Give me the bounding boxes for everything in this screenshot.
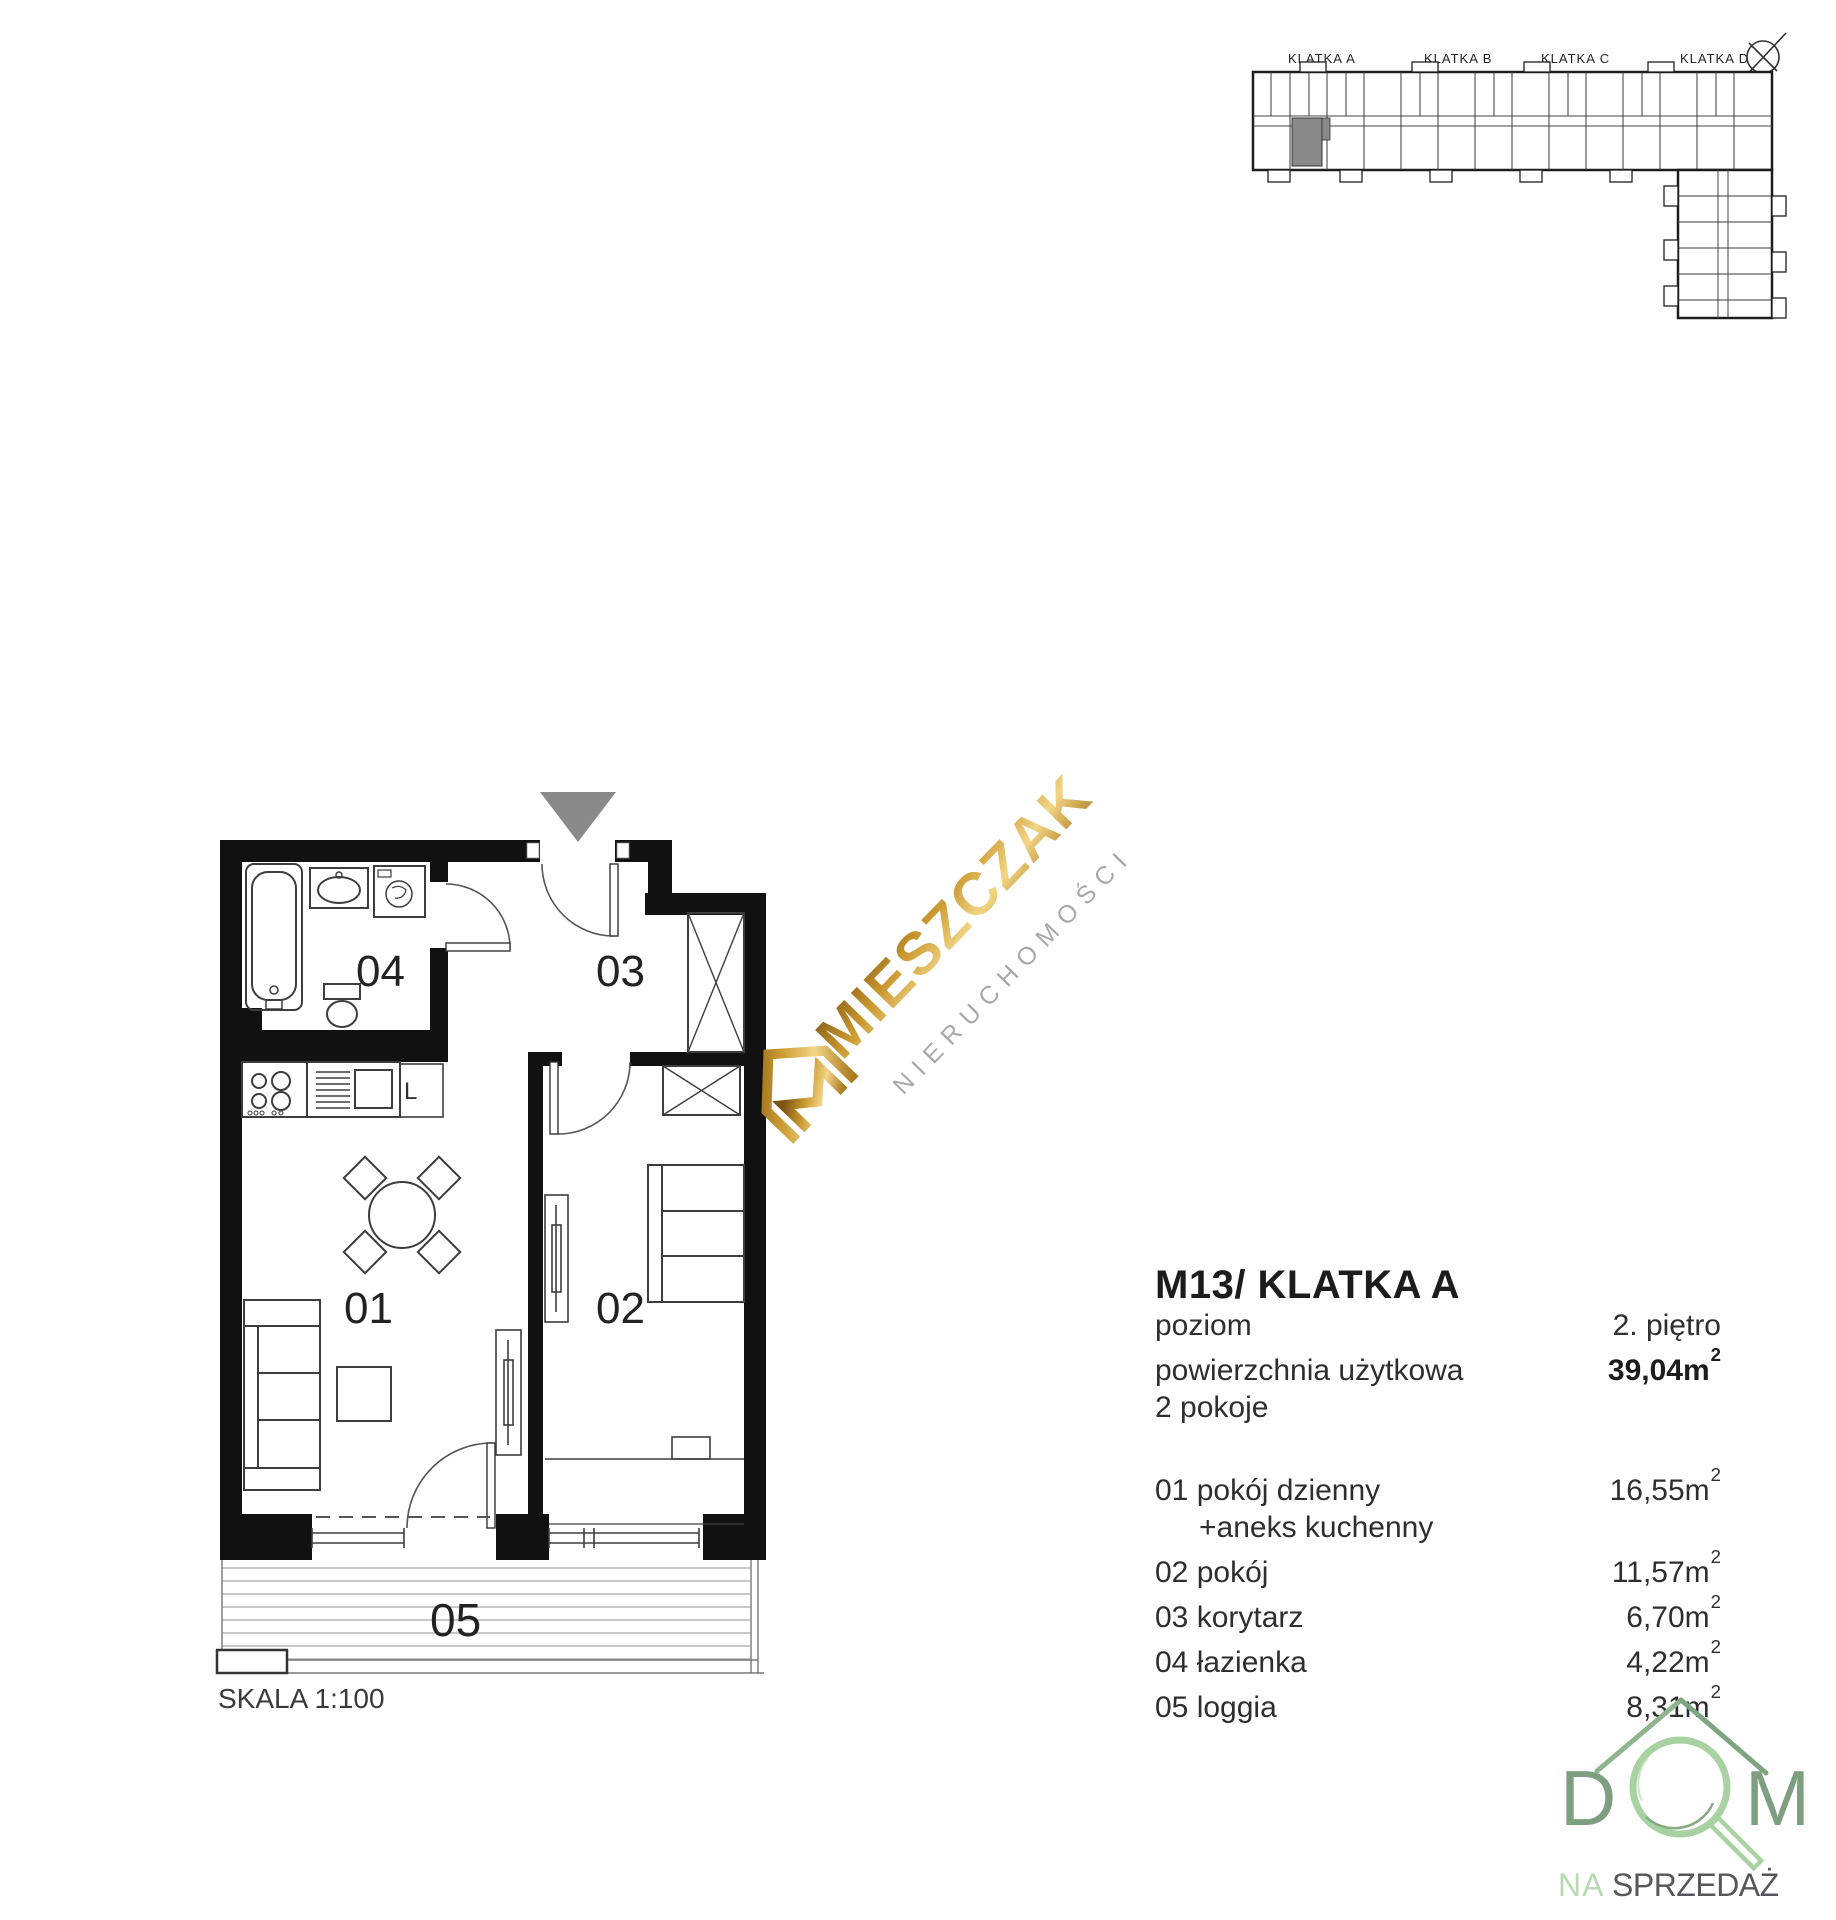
room-04-area: 4,22m2 xyxy=(1626,1636,1721,1681)
room-02-label: 02 pokój xyxy=(1155,1554,1268,1591)
fridge-label: L xyxy=(404,1078,417,1105)
area-value-number: 39,04m xyxy=(1608,1354,1710,1387)
room-04-area-number: 4,22m xyxy=(1626,1646,1709,1679)
level-label: poziom xyxy=(1155,1307,1252,1344)
bed-room2-icon xyxy=(545,1437,744,1459)
room-04-area-sup: 2 xyxy=(1711,1636,1721,1657)
highlighted-unit-annex xyxy=(1322,118,1330,140)
magnifier-icon xyxy=(1633,1740,1759,1866)
tagline-na: NA xyxy=(1558,1867,1604,1903)
roof-icon xyxy=(1597,1700,1766,1773)
loggia xyxy=(217,1560,764,1673)
room-04-label: 04 łazienka xyxy=(1155,1644,1307,1681)
apartment-details: M13/ KLATKA A poziom 2. piętro powierzch… xyxy=(1155,1263,1721,1726)
klatka-d-label: KLATKA D xyxy=(1680,51,1749,66)
room-label-05: 05 xyxy=(430,1594,481,1646)
sink-icon xyxy=(310,868,368,908)
agency-watermark: MIESZCZAK NIERUCHOMOŚCI xyxy=(560,680,1260,1280)
detail-row-rooms: 2 pokoje xyxy=(1155,1389,1721,1426)
sofa-icon xyxy=(244,1300,320,1490)
room-03-label: 03 korytarz xyxy=(1155,1599,1303,1636)
room-01-area: 16,55m2 xyxy=(1610,1464,1721,1509)
room-row-04: 04 łazienka 4,22m2 xyxy=(1155,1636,1721,1681)
logo-letter-d: D xyxy=(1560,1754,1616,1842)
tagline-sprzedaz: SPRZEDAŻ xyxy=(1612,1867,1779,1903)
building-bar xyxy=(1253,62,1772,182)
room-01-label: 01 pokój dzienny xyxy=(1155,1472,1380,1509)
room-01b-label: +aneks kuchenny xyxy=(1155,1509,1433,1546)
scale-label: SKALA 1:100 xyxy=(218,1683,385,1714)
room-row-01: 01 pokój dzienny 16,55m2 xyxy=(1155,1464,1721,1509)
dining-table-icon xyxy=(344,1157,460,1273)
area-value-sup: 2 xyxy=(1711,1344,1721,1365)
room-02-area: 11,57m2 xyxy=(1612,1546,1721,1591)
radiator-01 xyxy=(496,1330,521,1455)
portal-logo: D M NA SPRZEDAŻ xyxy=(1530,1680,1836,1915)
washing-machine-icon xyxy=(374,866,425,917)
bathroom-door xyxy=(446,884,510,951)
apartment-title: M13/ KLATKA A xyxy=(1155,1263,1721,1307)
stove-icon xyxy=(248,1072,290,1115)
logo-letter-m: M xyxy=(1745,1754,1810,1842)
kitchen-sink-icon xyxy=(316,1070,392,1108)
building-overview-plan: KLATKA A KLATKA B KLATKA C KLATKA D xyxy=(1240,28,1800,328)
detail-row-level: poziom 2. piętro xyxy=(1155,1307,1721,1344)
room-05-label: 05 loggia xyxy=(1155,1689,1277,1726)
room-label-02: 02 xyxy=(596,1284,645,1333)
room-row-02: 02 pokój 11,57m2 xyxy=(1155,1546,1721,1591)
bathtub-icon xyxy=(246,864,302,1010)
loggia-door xyxy=(316,1443,495,1528)
room-01-area-sup: 2 xyxy=(1711,1464,1721,1485)
building-wing-d xyxy=(1664,170,1786,318)
room-03-area-sup: 2 xyxy=(1711,1591,1721,1612)
detail-row-area: powierzchnia użytkowa 39,04m2 xyxy=(1155,1344,1721,1389)
loggia-step xyxy=(217,1650,287,1673)
coffee-table-icon xyxy=(337,1367,391,1421)
room-row-01b: +aneks kuchenny xyxy=(1155,1509,1721,1546)
area-label: powierzchnia użytkowa xyxy=(1155,1352,1463,1389)
level-value: 2. piętro xyxy=(1613,1307,1721,1344)
rooms-count-label: 2 pokoje xyxy=(1155,1389,1268,1426)
room-03-area-number: 6,70m xyxy=(1626,1601,1709,1634)
klatka-c-label: KLATKA C xyxy=(1541,51,1610,66)
room-02-area-number: 11,57m xyxy=(1612,1556,1710,1589)
room-02-area-sup: 2 xyxy=(1711,1546,1721,1567)
room-label-04: 04 xyxy=(356,947,405,996)
highlighted-unit xyxy=(1292,118,1322,166)
room-03-area: 6,70m2 xyxy=(1626,1591,1721,1636)
area-value: 39,04m2 xyxy=(1608,1344,1721,1389)
toilet-icon xyxy=(324,984,360,1027)
room-row-03: 03 korytarz 6,70m2 xyxy=(1155,1591,1721,1636)
room-01-area-number: 16,55m xyxy=(1610,1474,1710,1507)
room-label-01: 01 xyxy=(344,1284,393,1333)
